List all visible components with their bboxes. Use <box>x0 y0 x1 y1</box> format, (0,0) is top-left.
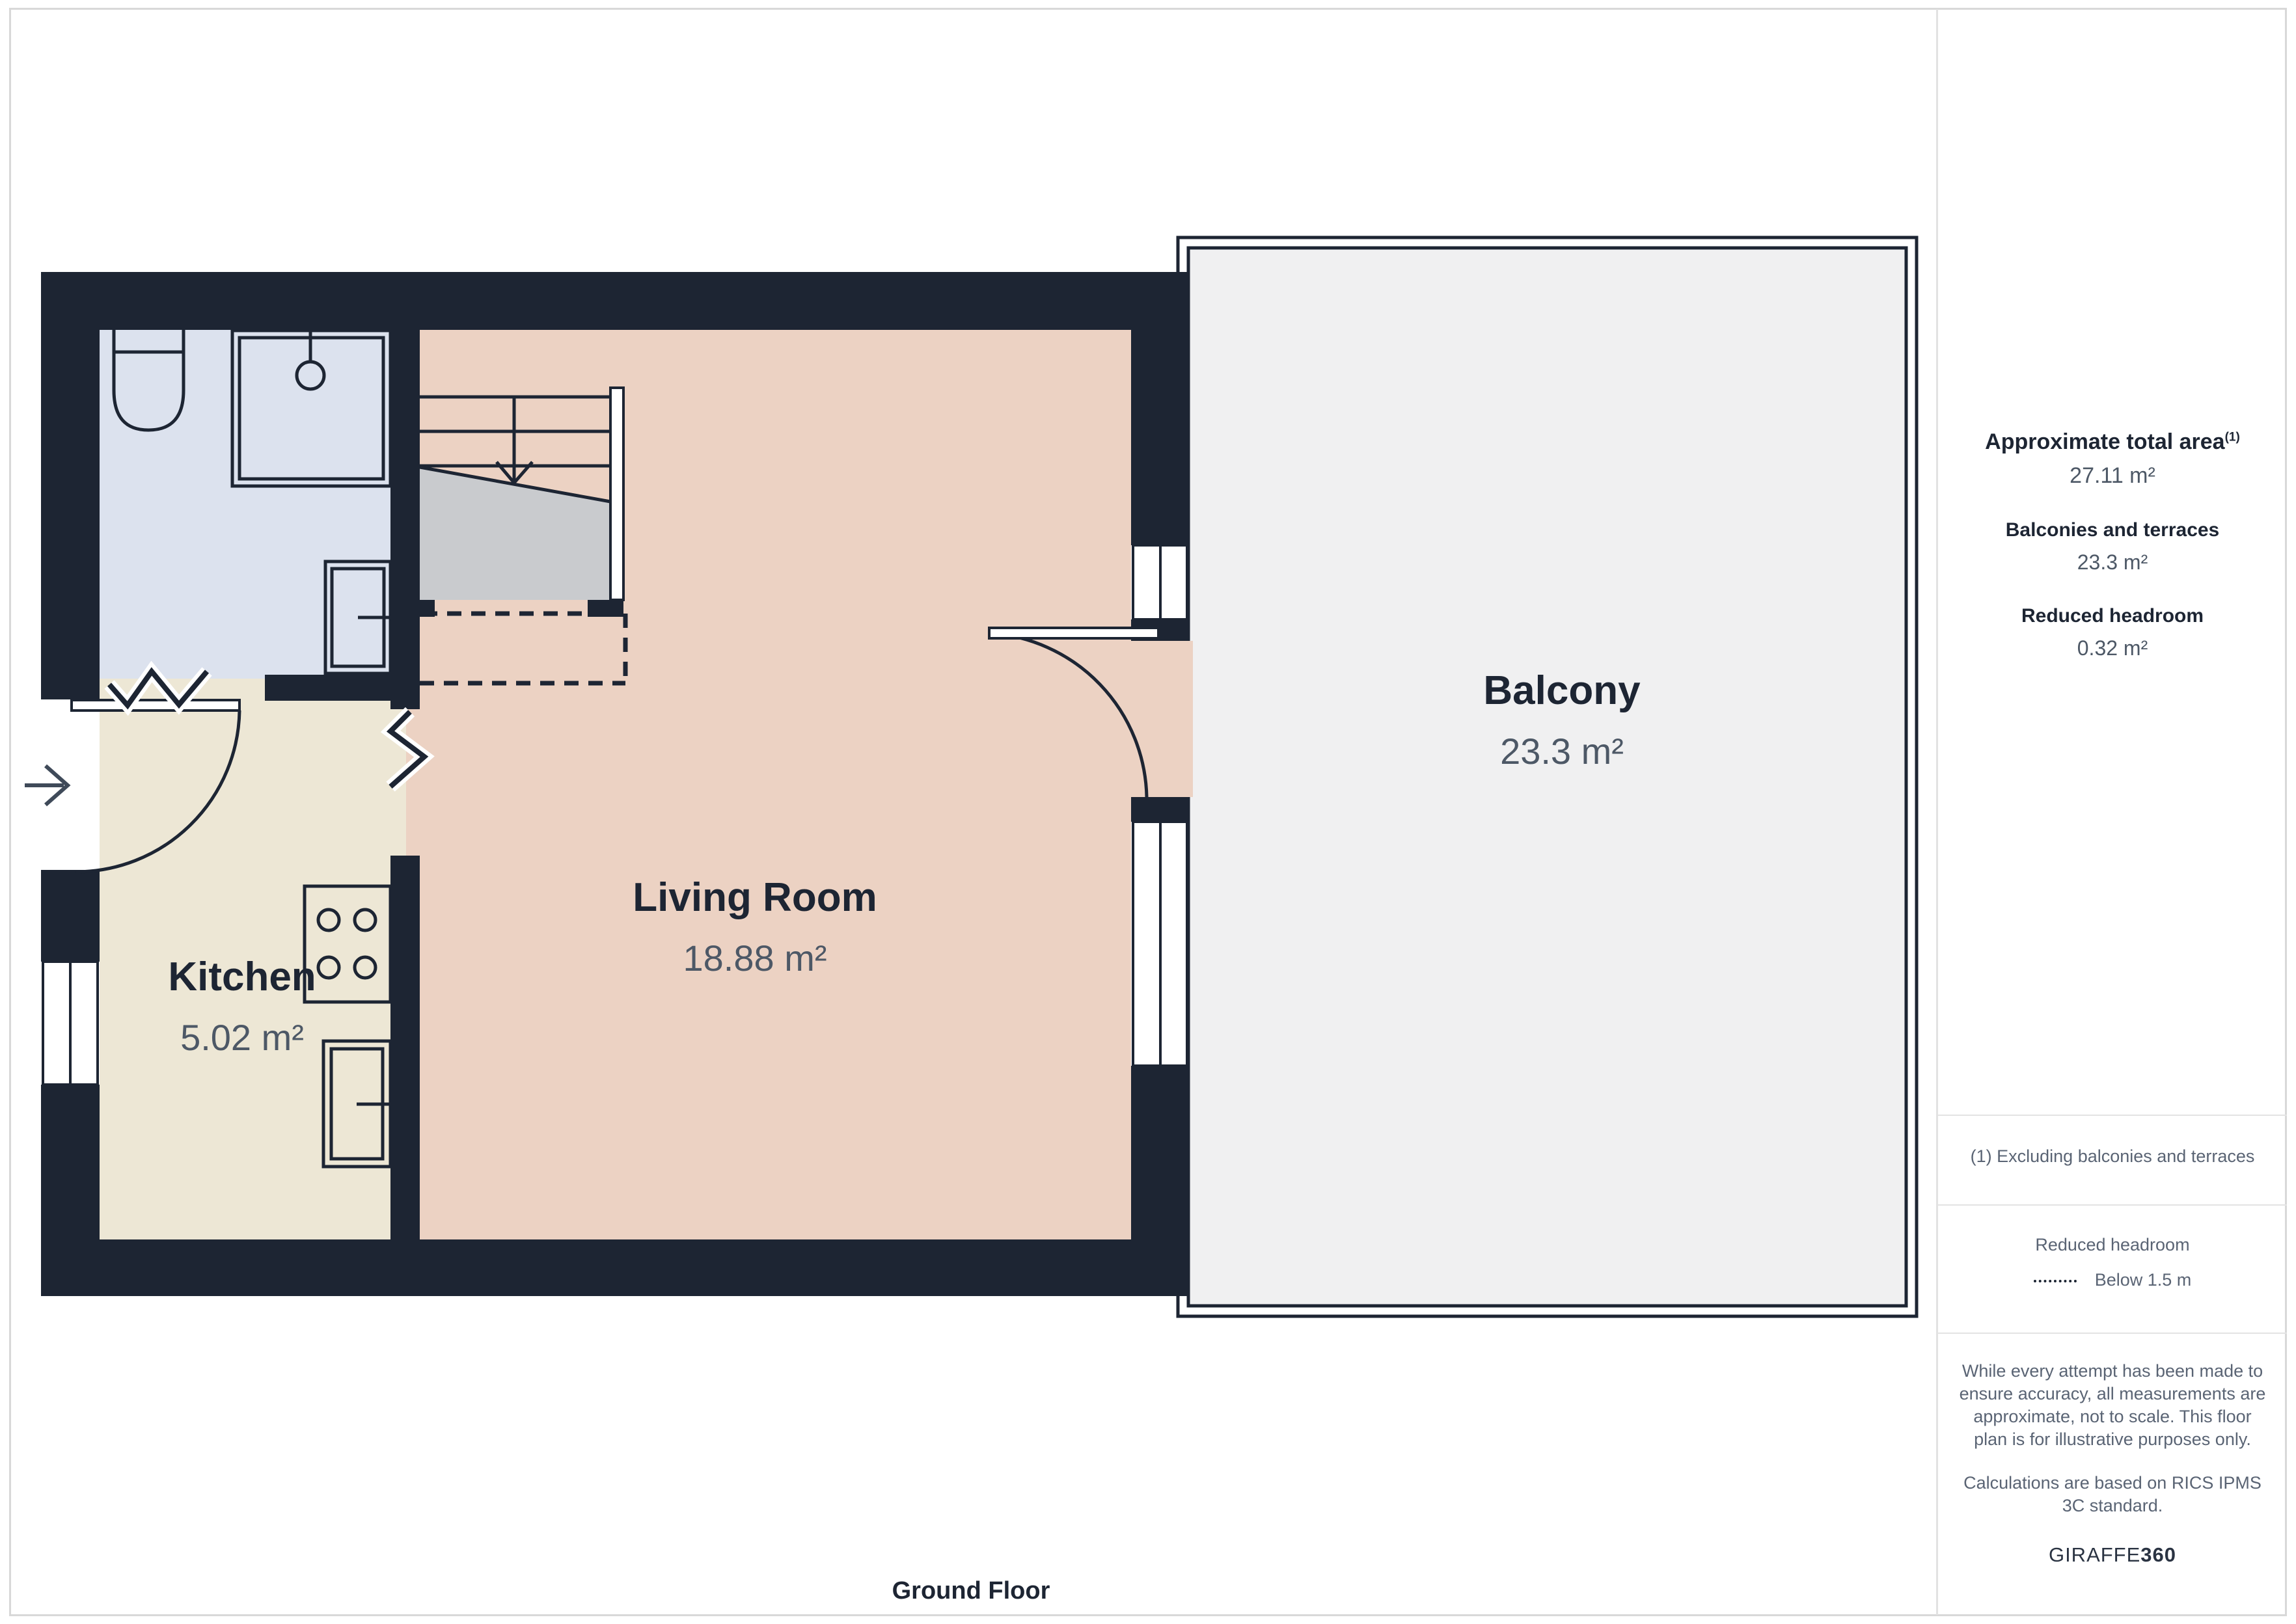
legend-item-text: Below 1.5 m <box>2095 1270 2192 1290</box>
reduced-headroom-value: 0.32 m² <box>1938 636 2287 660</box>
disclaimer-text: While every attempt has been made to ens… <box>1958 1360 2267 1451</box>
balcony-floor <box>1188 248 1906 1306</box>
wall-left-mid <box>41 870 100 962</box>
wall-bathroom-bottom <box>265 675 420 701</box>
kitchen-window <box>43 962 98 1085</box>
balcony-name-label: Balcony <box>1483 668 1641 713</box>
balconies-heading: Balconies and terraces <box>1938 519 2287 541</box>
brand-name: GIRAFFE <box>2049 1543 2140 1566</box>
wall-top <box>41 272 1189 330</box>
footnote-marker: (1) <box>2225 431 2240 444</box>
sidebar-divider-3 <box>1938 1333 2287 1334</box>
living-room-name-label: Living Room <box>633 875 877 920</box>
living-room-window-upper <box>1133 545 1187 619</box>
total-area-heading-text: Approximate total area <box>1985 429 2224 454</box>
legend-row: Below 1.5 m <box>1938 1270 2287 1290</box>
kitchen-area-label: 5.02 m² <box>180 1017 304 1058</box>
giraffe360-logo: GIRAFFE360 <box>1938 1543 2287 1567</box>
wall-right-upper <box>1131 272 1189 545</box>
wall-kitchen-living <box>390 856 420 1239</box>
wall-bathroom-stairs <box>390 330 420 709</box>
sidebar-divider-1 <box>1938 1115 2287 1116</box>
brand-suffix: 360 <box>2140 1543 2176 1566</box>
entry-door-leaf <box>72 700 239 710</box>
reduced-headroom-dash-icon <box>2034 1280 2077 1282</box>
floor-plan-drawing: Living Room 18.88 m² Kitchen 5.02 m² Bal… <box>0 0 2296 1624</box>
balcony-area-label: 23.3 m² <box>1500 731 1624 772</box>
total-area-heading: Approximate total area(1) <box>1938 429 2287 455</box>
wall-bottom <box>41 1239 1189 1296</box>
balcony-door-leaf <box>989 628 1158 638</box>
floor-title: Ground Floor <box>841 1577 1101 1605</box>
living-room-area-label: 18.88 m² <box>683 938 827 979</box>
wall-right-lower <box>1131 1066 1189 1239</box>
sidebar-divider-vertical <box>1936 9 1938 1615</box>
entrance-arrow-icon <box>25 766 68 805</box>
floorplan-sheet: { "page": { "floor_label": "Ground Floor… <box>0 0 2296 1624</box>
stair-wall-stub-right <box>588 600 623 617</box>
standard-text: Calculations are based on RICS IPMS 3C s… <box>1958 1472 2267 1517</box>
wall-left-lower <box>41 1085 100 1239</box>
bathroom-floor <box>100 330 392 679</box>
reduced-headroom-heading: Reduced headroom <box>1938 605 2287 627</box>
balcony-structure <box>1178 237 1917 1316</box>
wall-right-bar2 <box>1131 797 1189 822</box>
sidebar-divider-2 <box>1938 1204 2287 1206</box>
footnote-text: (1) Excluding balconies and terraces <box>1938 1146 2287 1167</box>
kitchen-name-label: Kitchen <box>168 954 316 999</box>
balconies-value: 23.3 m² <box>1938 550 2287 575</box>
stair-railing <box>610 388 623 600</box>
legend-title: Reduced headroom <box>1938 1235 2287 1255</box>
wall-left-upper <box>41 272 100 699</box>
balcony-door-opening <box>1131 641 1193 797</box>
living-room-window-lower <box>1133 822 1187 1066</box>
total-area-value: 27.11 m² <box>1938 463 2287 489</box>
